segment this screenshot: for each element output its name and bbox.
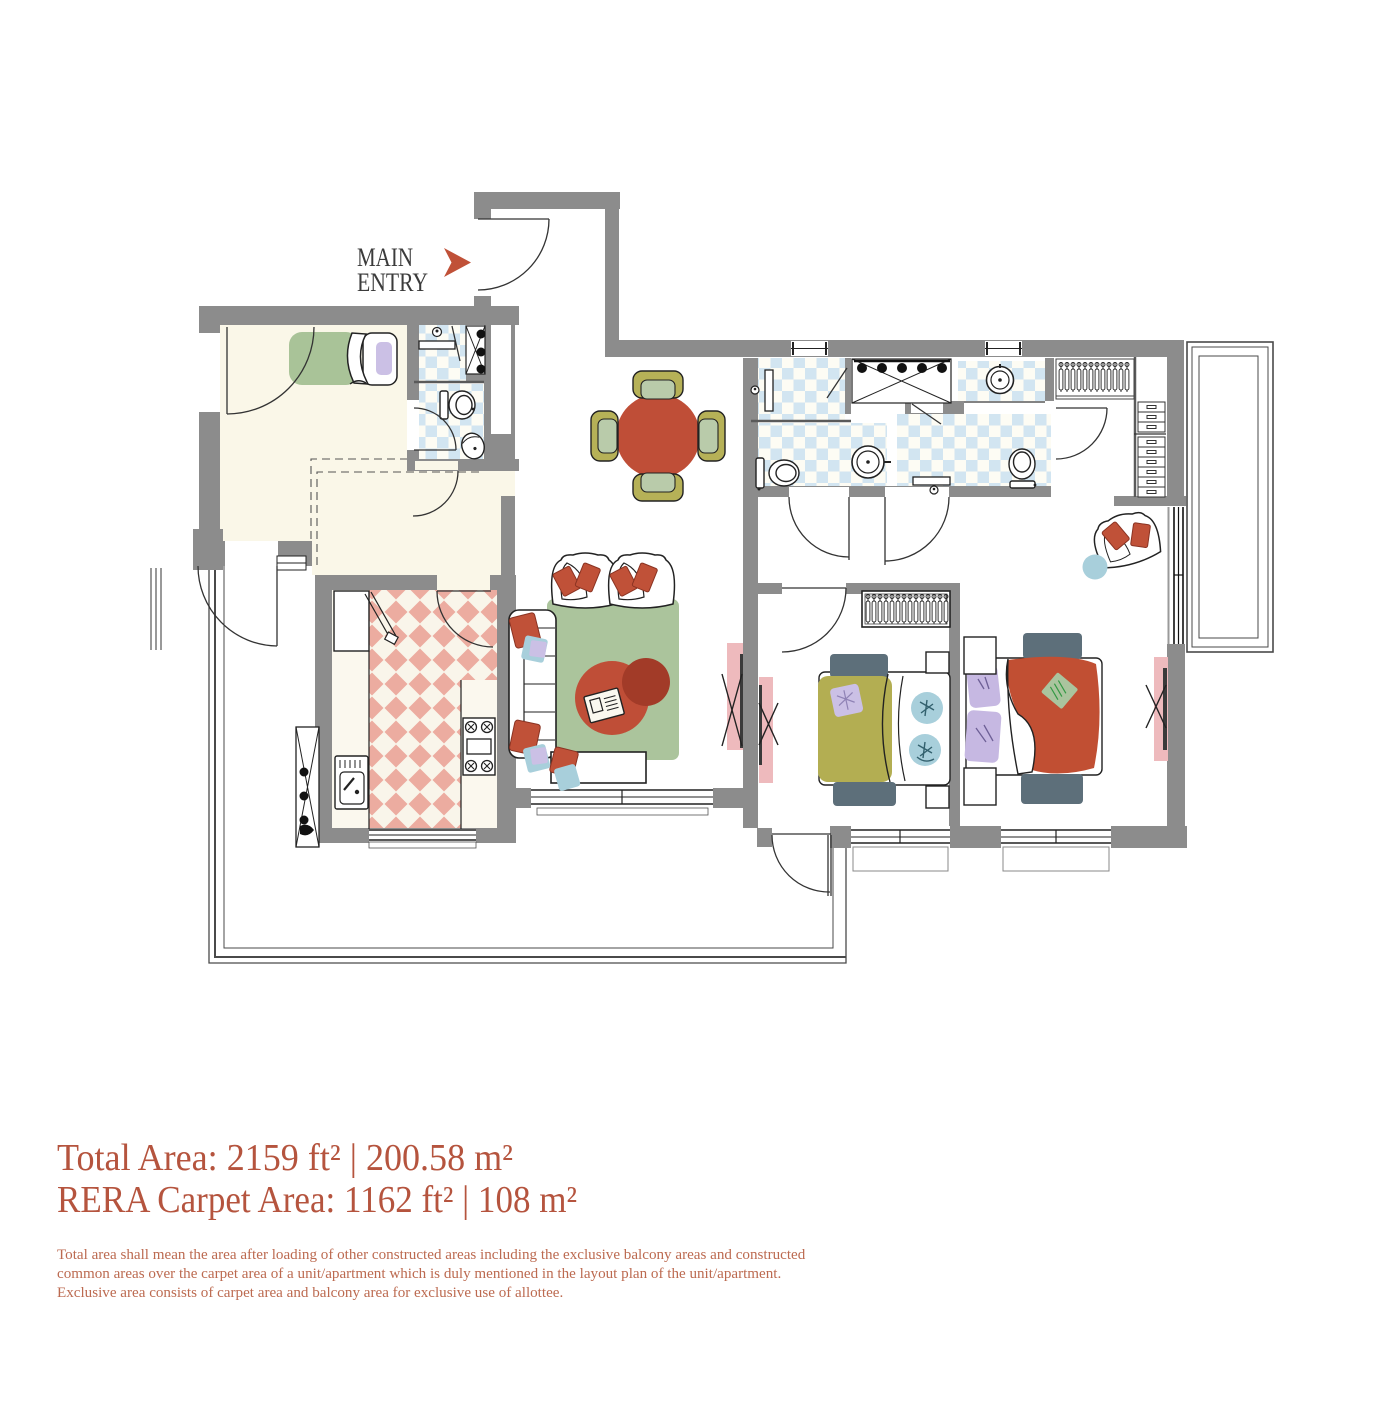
svg-text:Total area shall mean the area: Total area shall mean the area after loa… xyxy=(57,1247,806,1263)
svg-text:common areas over the carpet a: common areas over the carpet area of a u… xyxy=(57,1266,781,1282)
svg-text:Exclusive area consists of car: Exclusive area consists of carpet area a… xyxy=(57,1285,563,1301)
svg-text:RERA Carpet Area: 1162 ft² | 1: RERA Carpet Area: 1162 ft² | 108 m² xyxy=(57,1179,577,1221)
svg-text:ENTRY: ENTRY xyxy=(357,268,428,297)
svg-text:Total Area: 2159 ft² | 200.58: Total Area: 2159 ft² | 200.58 m² xyxy=(57,1137,513,1179)
